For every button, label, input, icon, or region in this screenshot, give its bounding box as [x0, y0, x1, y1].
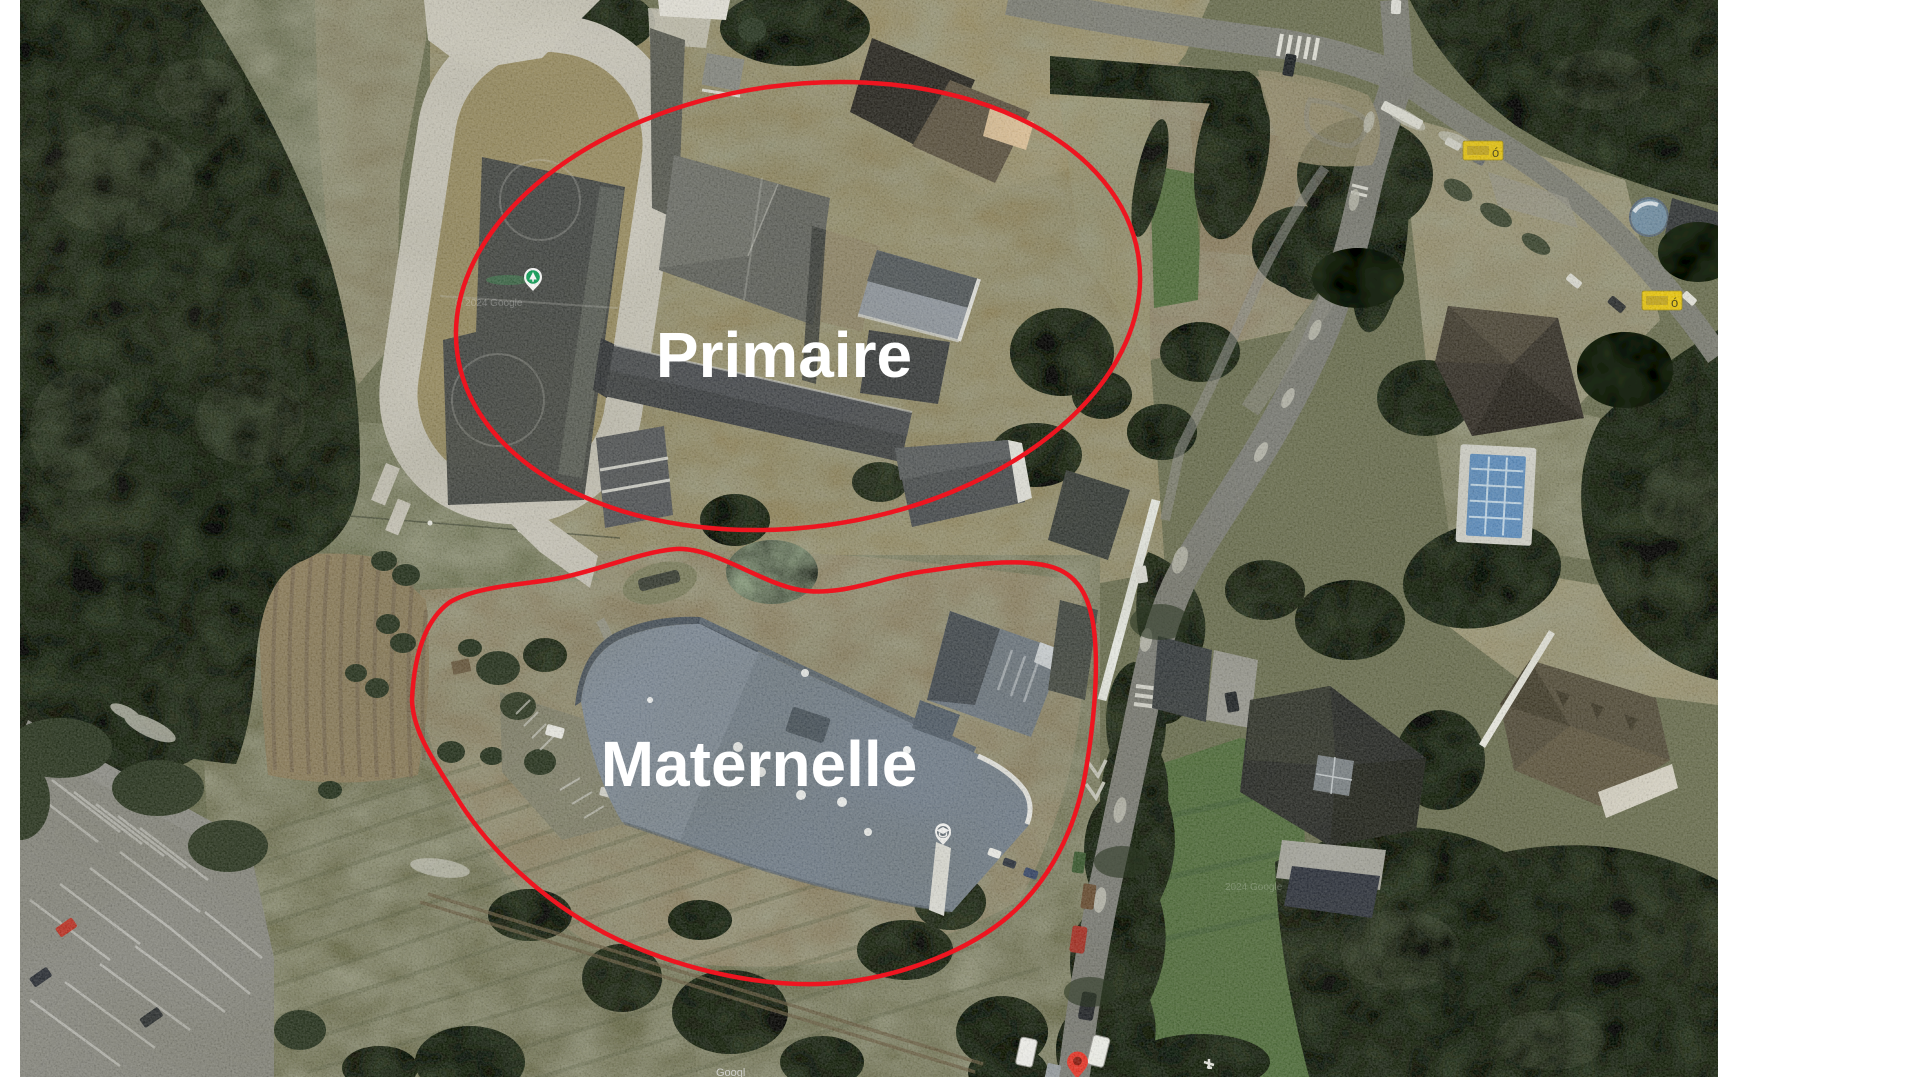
svg-text:Maternelle: Maternelle — [601, 728, 918, 800]
svg-text:Primaire: Primaire — [656, 319, 912, 391]
